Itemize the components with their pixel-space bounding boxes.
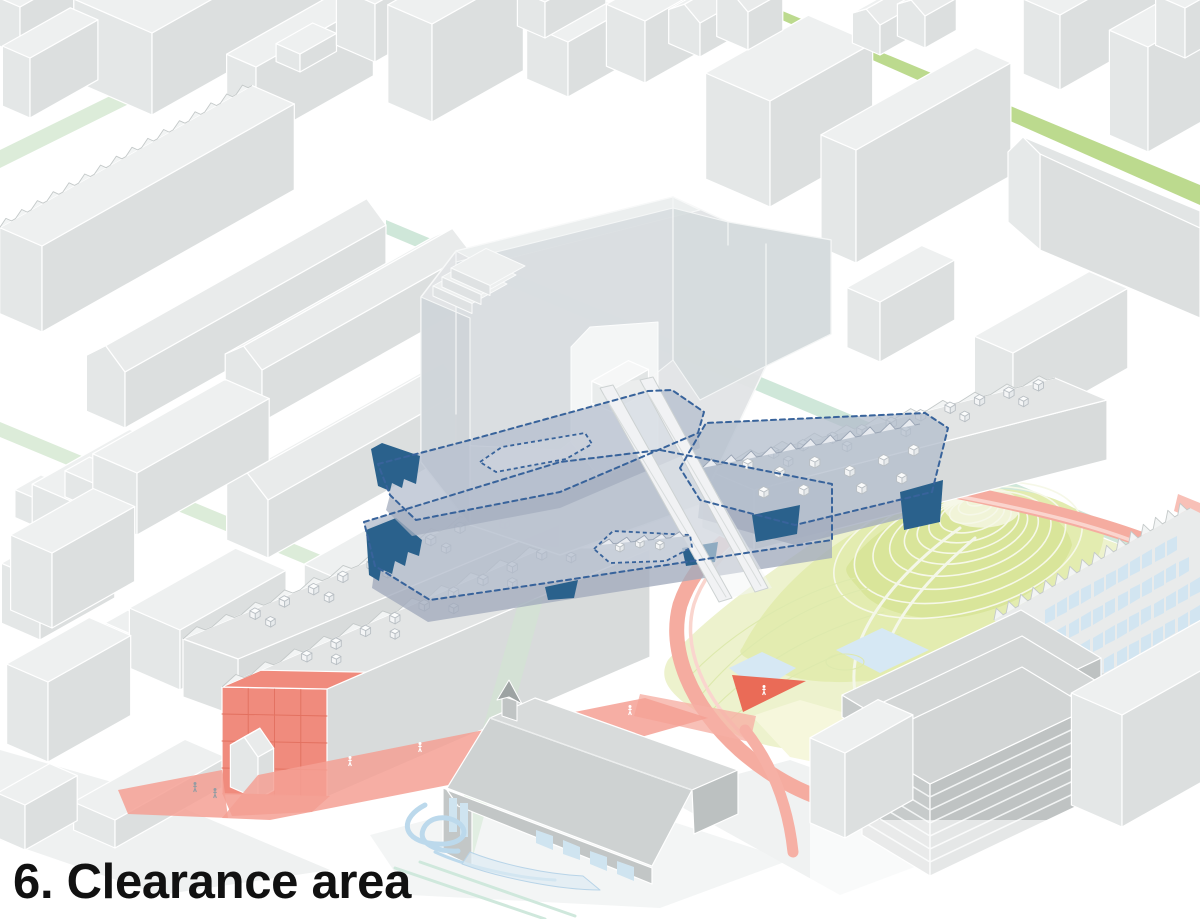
svg-text:6. Clearance area: 6. Clearance area bbox=[13, 855, 412, 909]
